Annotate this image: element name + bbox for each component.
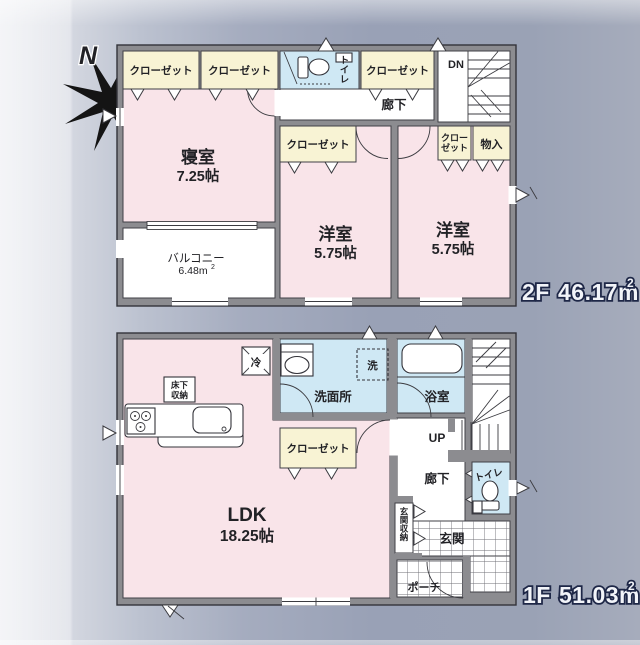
floor2-closet5-line1: クロー (441, 133, 468, 143)
floor2-western-right-size: 5.75帖 (432, 240, 475, 258)
floor-area-labels: 2F 46.17m 2 1F 51.03m 2 (522, 276, 640, 608)
floor2-stairs-label: DN (448, 59, 464, 71)
floor1-fridge-label: 冷 (251, 356, 262, 369)
floor1-ldk-size: 18.25帖 (220, 526, 275, 545)
floor1-ldk-name: LDK (227, 505, 266, 526)
floor2-bedroom-size: 7.25帖 (177, 167, 220, 185)
floor2-closet4-label: クローゼット (287, 138, 350, 151)
floor1-floor-storage-line2: 収納 (171, 390, 188, 400)
floor2-western-left-name: 洋室 (319, 224, 353, 244)
compass-north-label: N (79, 42, 98, 70)
floor2-western-left-size: 5.75帖 (314, 244, 357, 262)
floor2-balcony-size-sup: 2 (211, 264, 215, 271)
floor2-balcony-name: バルコニー (167, 252, 224, 265)
floor2-balcony-size: 6.48m (178, 265, 207, 277)
floor1-vanity-icon (281, 344, 313, 376)
floor2-storage-label: 物入 (481, 137, 503, 151)
floor1-stairs-label: UP (429, 431, 446, 445)
floor2-plan: クローゼット クローゼット クローゼット トイレ DN 廊下 寝室 7.25帖 … (103, 38, 537, 306)
floor2-bedroom-name: 寝室 (181, 147, 215, 167)
floor1-porch-label: ポーチ (408, 580, 441, 594)
floor2-name-label: 2F (522, 279, 550, 305)
floor1-entrance-storage-label: 玄関収納 (399, 506, 409, 542)
floor2-western-right-name: 洋室 (436, 220, 470, 240)
floor1-washer-label: 洗 (367, 359, 378, 372)
floor2-closet5-line2: ゼット (441, 142, 468, 153)
floorplan-canvas: N (0, 0, 640, 640)
floorplan-page: N (0, 0, 640, 640)
floor2-hallway-label: 廊下 (381, 97, 407, 112)
floor1-closet-label: クローゼット (287, 442, 350, 455)
floor1-area-sup: 2 (628, 579, 635, 593)
floor2-closet3-label: クローゼット (366, 64, 429, 77)
floor1-bathtub-icon (397, 344, 465, 377)
floor2-toilet-label: トイレ (338, 55, 350, 84)
floor1-name-label: 1F (523, 582, 551, 608)
floor1-plan: 洗面所 洗 浴室 冷 床下 収納 クローゼット UP 廊下 トイレ LDK 18… (103, 326, 537, 619)
floor2-closet2-label: クローゼット (208, 64, 271, 77)
floor1-washroom-label: 洗面所 (314, 389, 352, 404)
floor1-hallway-label: 廊下 (424, 471, 450, 486)
floor1-entrance-label: 玄関 (439, 531, 464, 546)
floor1-bathroom-label: 浴室 (424, 389, 450, 404)
floor2-area-sup: 2 (627, 276, 634, 290)
floor2-closet1-label: クローゼット (130, 64, 193, 77)
floor1-stairwell (472, 339, 510, 453)
floor1-floor-storage-line1: 床下 (171, 380, 189, 390)
